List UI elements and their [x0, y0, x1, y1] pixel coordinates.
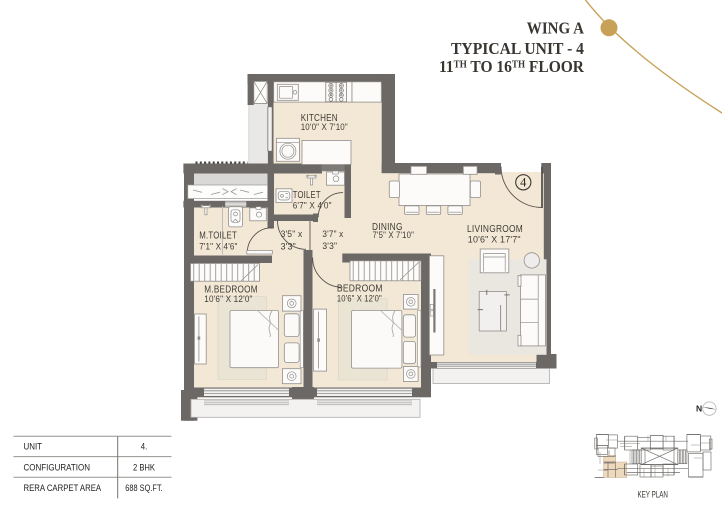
svg-text:WING A: WING A: [527, 18, 585, 37]
svg-text:688 SQ.FT.: 688 SQ.FT.: [125, 483, 162, 494]
svg-text:N: N: [696, 404, 702, 414]
svg-text:10'0" X 7'10": 10'0" X 7'10": [301, 121, 348, 132]
svg-text:3'3": 3'3": [281, 240, 296, 251]
svg-text:RERA CARPET AREA: RERA CARPET AREA: [24, 483, 102, 494]
svg-text:KEY PLAN: KEY PLAN: [637, 490, 668, 500]
svg-text:3'3": 3'3": [322, 240, 337, 251]
svg-text:10'6" X 17'7": 10'6" X 17'7": [468, 233, 521, 244]
svg-text:4: 4: [520, 176, 527, 190]
svg-text:CONFIGURATION: CONFIGURATION: [24, 462, 91, 473]
svg-text:3'5" x: 3'5" x: [281, 228, 303, 239]
svg-text:10'6" X 12'0": 10'6" X 12'0": [337, 293, 382, 304]
svg-text:6'7" X 4'0": 6'7" X 4'0": [293, 199, 332, 210]
svg-text:2 BHK: 2 BHK: [133, 462, 156, 473]
svg-text:3'7" x: 3'7" x: [322, 228, 343, 239]
svg-text:TYPICAL UNIT - 4: TYPICAL UNIT - 4: [451, 39, 584, 58]
svg-text:4.: 4.: [141, 442, 148, 453]
svg-text:7'1" X 4'6": 7'1" X 4'6": [199, 241, 237, 252]
svg-text:UNIT: UNIT: [24, 442, 43, 453]
svg-text:7'5" X 7'10": 7'5" X 7'10": [373, 229, 415, 240]
svg-text:10'6" X 12'0": 10'6" X 12'0": [204, 293, 252, 304]
